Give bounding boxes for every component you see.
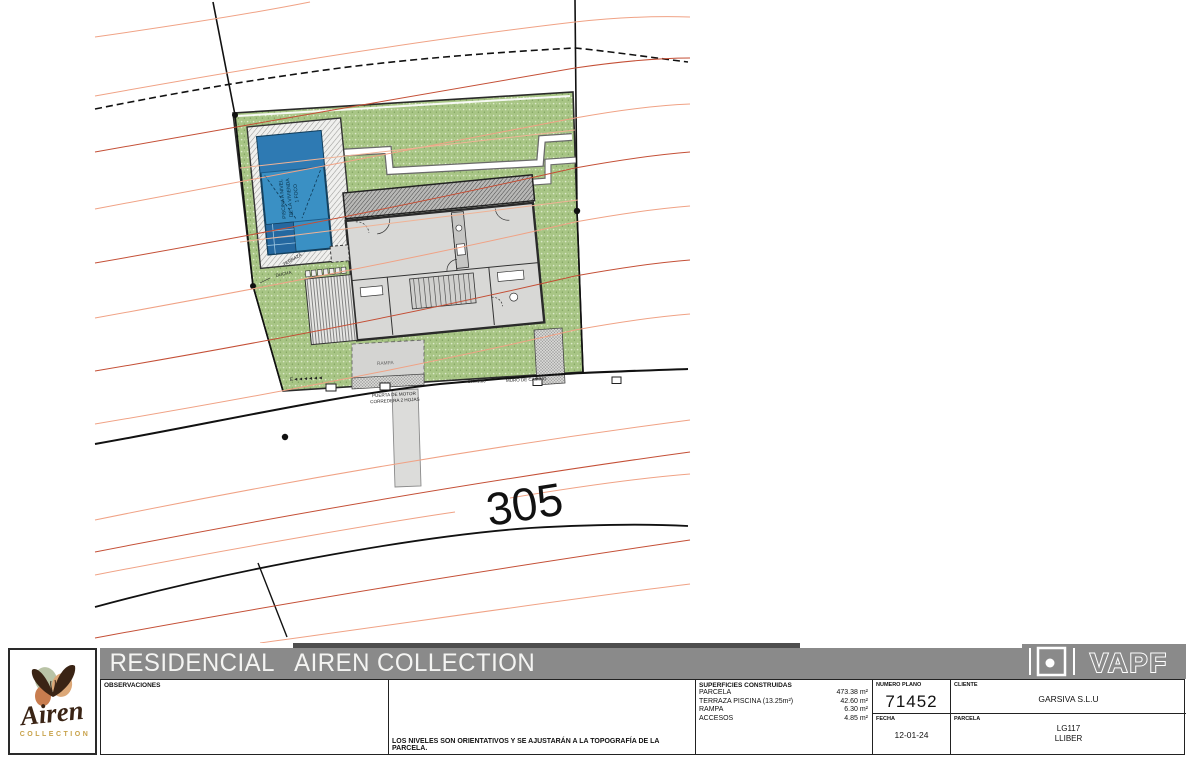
- numero-plano-value: 71452: [873, 692, 950, 712]
- observaciones-label: OBSERVACIONES: [101, 680, 388, 689]
- superficies-row-rampa: RAMPA 6.30 m²: [699, 706, 868, 715]
- airen-logo-box: Airen COLLECTION: [8, 648, 97, 755]
- airen-logo-sub: COLLECTION: [19, 731, 90, 738]
- fecha-label: FECHA: [873, 714, 950, 722]
- fecha-value: 12-01-24: [873, 730, 950, 740]
- vapf-logo-text: VAPF: [1090, 648, 1168, 678]
- plan-sheet: PISCINA A NIVEL DE LA VIVIENDA 1 FOCO: [0, 0, 1200, 761]
- superficies-label: SUPERFICIES CONSTRUIDAS: [696, 680, 872, 689]
- row-name: RAMPA: [699, 706, 723, 715]
- superficies-row-terraza: TERRAZA PISCINA (13.25m²) 42.60 m²: [699, 698, 868, 707]
- vapf-logo: VAPF: [1022, 644, 1186, 679]
- vapf-dot-icon: [1046, 659, 1055, 668]
- row-value: 4.85 m²: [844, 715, 868, 724]
- stairs: [410, 273, 477, 309]
- title-block: Airen COLLECTION RESIDENCIAL AIREN COLLE…: [0, 643, 1200, 761]
- row-name: PARCELA: [699, 689, 731, 698]
- airen-logo-name: Airen: [17, 695, 85, 732]
- cliente-value: GARSIVA S.L.U: [951, 694, 1186, 704]
- row-name: TERRAZA PISCINA (13.25m²): [699, 698, 793, 707]
- parcela-label: PARCELA: [951, 714, 1186, 722]
- vapf-logo-block: VAPF: [1022, 644, 1186, 679]
- superficies-row-parcela: PARCELA 473.38 m²: [699, 689, 868, 698]
- title-block-table: OBSERVACIONES LOS NIVELES SON ORIENTATIV…: [100, 679, 1185, 755]
- row-value: 473.38 m²: [836, 689, 868, 698]
- sheet-title-bar: RESIDENCIAL AIREN COLLECTION: [100, 648, 1022, 679]
- numero-plano-label: NUMERO PLANO: [873, 680, 950, 688]
- superficies-cell: SUPERFICIES CONSTRUIDAS PARCELA 473.38 m…: [696, 680, 873, 754]
- cliente-label: CLIENTE: [951, 680, 1186, 688]
- sheet-title: RESIDENCIAL AIREN COLLECTION: [100, 649, 535, 678]
- parcela-value-line1: LG117: [951, 724, 1186, 734]
- row-value: 42.60 m²: [840, 698, 868, 707]
- cliente-cell: CLIENTE GARSIVA S.L.U PARCELA LG117 LLIB…: [951, 680, 1186, 754]
- numero-plano-cell: NUMERO PLANO 71452 FECHA 12-01-24: [873, 680, 951, 754]
- niveles-note-cell: LOS NIVELES SON ORIENTATIVOS Y SE AJUSTA…: [389, 680, 696, 754]
- row-name: ACCESOS: [699, 715, 733, 724]
- ramp-label: RAMPA: [377, 360, 395, 367]
- parcela-value-line2: LLIBER: [951, 734, 1186, 744]
- louver-deck: [304, 267, 357, 345]
- row-value: 6.30 m²: [844, 706, 868, 715]
- superficies-row-accesos: ACCESOS 4.85 m²: [699, 715, 868, 724]
- airen-logo: Airen COLLECTION: [12, 654, 94, 754]
- niveles-note: LOS NIVELES SON ORIENTATIVOS Y SE AJUSTA…: [392, 738, 695, 752]
- observaciones-cell: OBSERVACIONES: [101, 680, 389, 754]
- gate-size-label: 100x1.30: [468, 378, 486, 384]
- site-plan-drawing: PISCINA A NIVEL DE LA VIVIENDA 1 FOCO: [0, 0, 1200, 643]
